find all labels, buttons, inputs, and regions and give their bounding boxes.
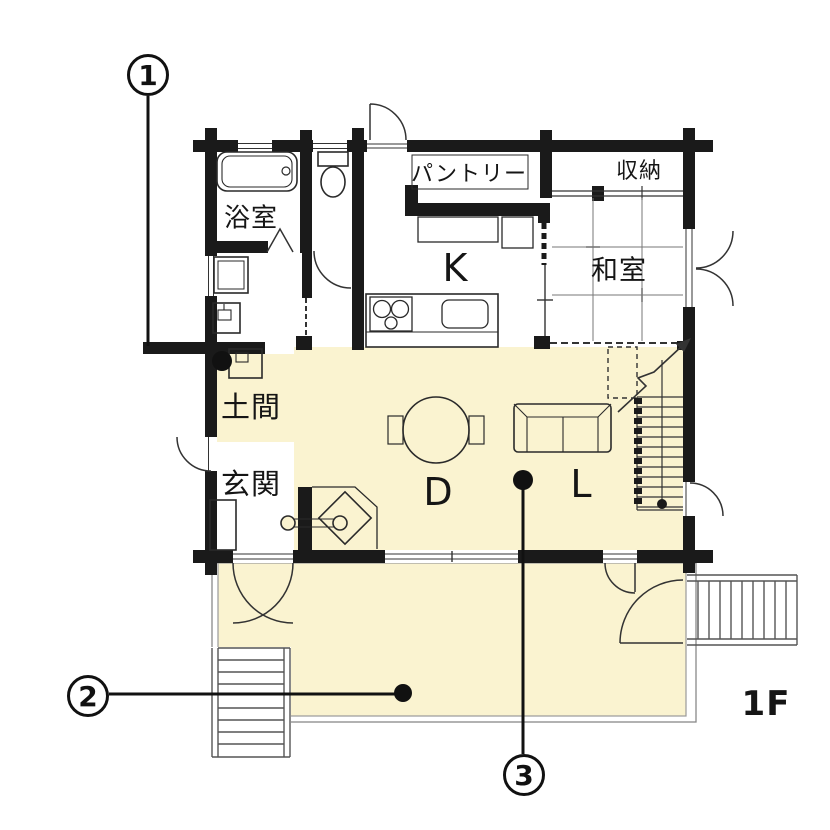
door-opening-entrance xyxy=(205,437,217,471)
callout-1: 1 xyxy=(127,54,169,96)
cupboard xyxy=(418,217,498,242)
callout-dot-1 xyxy=(212,351,232,371)
label-pantry: パントリー xyxy=(411,156,527,188)
label-kitchen: K xyxy=(443,246,468,290)
washing-machine xyxy=(214,257,248,293)
washbasin xyxy=(213,303,240,333)
label-entrance: 玄関 xyxy=(221,461,281,503)
door-arc-washitsu-top xyxy=(696,231,733,268)
door-opening-living-deck xyxy=(603,550,637,563)
window-bathroom-top xyxy=(238,140,272,152)
door-arc-washitsu-bottom xyxy=(696,269,733,306)
floor-label: 1F xyxy=(742,684,791,724)
door-opening-living-right xyxy=(683,482,695,516)
label-living: L xyxy=(570,462,591,506)
callout-3: 3 xyxy=(503,754,545,796)
window-living-bottom xyxy=(385,550,518,563)
window-washroom-left xyxy=(205,256,217,296)
floor-plan-drawing xyxy=(0,0,830,830)
callout-dot-3 xyxy=(513,470,533,490)
door-arc-pantry-entry xyxy=(370,104,406,140)
stair-railing xyxy=(634,398,642,504)
door-arc-toilet xyxy=(314,251,351,288)
label-storage: 収納 xyxy=(616,153,662,185)
floor-plan: 浴室 パントリー 収納 K 和室 土間 玄関 D L 1F 1 2 3 xyxy=(0,0,830,830)
callout-2: 2 xyxy=(67,675,109,717)
door-opening-washitsu-right xyxy=(683,229,695,307)
callout-dot-2 xyxy=(394,684,412,702)
label-bathroom: 浴室 xyxy=(224,198,278,235)
door-opening-genkan-deck xyxy=(233,550,293,563)
refrigerator xyxy=(502,217,533,248)
window-toilet-top xyxy=(313,140,347,152)
kitchen-sink xyxy=(442,300,488,328)
bathtub xyxy=(217,152,297,191)
cooktop xyxy=(370,297,412,331)
label-doma: 土間 xyxy=(221,384,281,426)
label-dining: D xyxy=(423,470,452,514)
door-opening-top xyxy=(367,140,407,152)
label-japanese-room: 和室 xyxy=(591,249,647,288)
exterior-stairs-right xyxy=(687,575,797,645)
toilet xyxy=(318,152,348,197)
